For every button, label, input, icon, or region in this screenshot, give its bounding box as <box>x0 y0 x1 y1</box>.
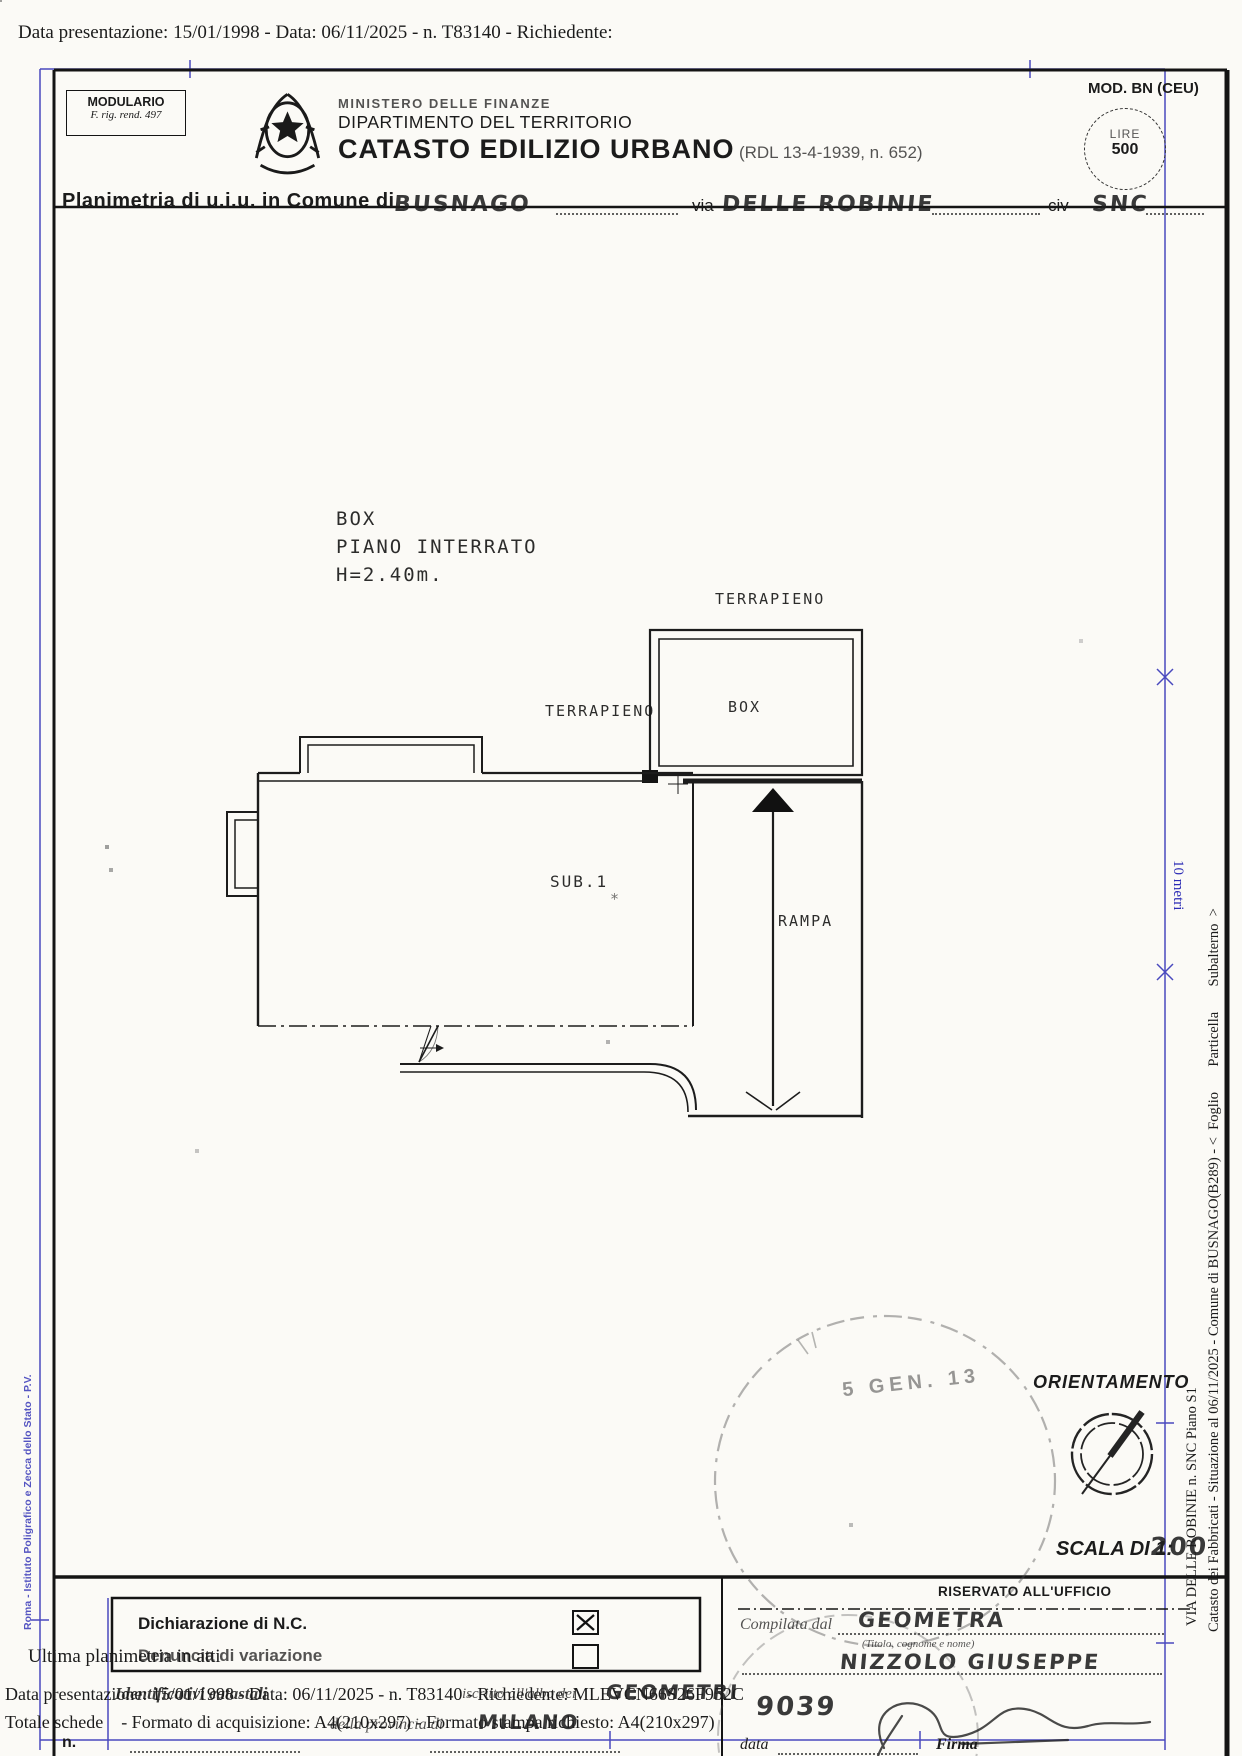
label-box-room: BOX <box>728 698 761 716</box>
label-terrapieno-left: TERRAPIENO <box>545 702 655 720</box>
survey-cross <box>668 774 688 794</box>
republic-emblem-icon <box>245 84 330 184</box>
signature <box>878 1703 1150 1756</box>
provincia-label: della provincia di <box>330 1716 443 1734</box>
plan-caption-line3: H=2.40m. <box>336 564 444 586</box>
compiler-name: NIZZOLO GIUSEPPE <box>839 1650 1101 1674</box>
via-label: via <box>692 196 714 216</box>
label-rampa: RAMPA <box>778 912 833 930</box>
albo-value: GEOMETRI <box>605 1680 740 1704</box>
compass-icon <box>1072 1412 1152 1494</box>
plan-caption-line2: PIANO INTERRATO <box>336 536 538 558</box>
bollo-lire-stamp: LIRE 500 <box>1084 108 1166 190</box>
modulario-box: MODULARIO F. rig. rend. 497 <box>66 90 186 136</box>
mod-bn-label: MOD. BN (CEU) <box>1088 80 1199 97</box>
scalebar-label: 10 metri <box>1169 860 1186 910</box>
via-value: DELLE ROBINIE <box>721 192 935 217</box>
titolo-hint: (Titolo, cognome e nome) <box>862 1638 974 1650</box>
civ-value: SNC <box>1091 192 1150 217</box>
scan-noise <box>0 0 2 2</box>
dotted-line <box>932 212 1040 215</box>
door-swing-icon <box>419 1026 444 1062</box>
department-line: DIPARTIMENTO DEL TERRITORIO <box>338 112 632 133</box>
identificativi-label: Identificativi catastali <box>115 1684 268 1704</box>
document-border <box>54 70 1227 1756</box>
dichiarazione-label: Dichiarazione di N.C. <box>138 1614 307 1634</box>
albo-number: 9039 <box>755 1692 838 1722</box>
ultima-planimetria-overlay: Ultima planimetria in atti <box>28 1646 221 1668</box>
plan-speck-asterisk: * <box>610 890 621 908</box>
margin-text-right-outer: Catasto dei Fabbricati - Situazione al 0… <box>1206 908 1223 1632</box>
margin-text-right-inner: VIA DELLE ROBINIE n. SNC Piano S1 <box>1184 1387 1201 1626</box>
firma-label: Firma <box>936 1736 978 1754</box>
blue-frame <box>31 60 1174 1750</box>
dotted-line <box>1146 212 1204 215</box>
data-label: data <box>740 1736 768 1754</box>
catasto-ref: (RDL 13-4-1939, n. 652) <box>739 143 923 162</box>
label-sub-room: SUB.1 <box>550 872 608 891</box>
riservato-label: RISERVATO ALL'UFFICIO <box>938 1584 1111 1599</box>
compilata-value: GEOMETRA <box>857 1608 1007 1632</box>
dotted-line <box>556 212 678 215</box>
label-terrapieno-top: TERRAPIENO <box>715 590 825 608</box>
checkbox-empty-icon <box>572 1644 599 1669</box>
civ-label: civ <box>1048 196 1069 216</box>
orientamento-label: ORIENTAMENTO <box>1033 1372 1189 1393</box>
dotted-line <box>838 1632 1164 1635</box>
catasto-title: CATASTO EDILIZIO URBANO <box>338 134 735 164</box>
dotted-line <box>130 1750 300 1753</box>
bollo-lire-label: LIRE <box>1085 127 1165 141</box>
provincia-value: MILANO <box>477 1710 580 1734</box>
ministry-line: MINISTERO DELLE FINANZE <box>338 96 551 111</box>
scan-linework <box>0 0 1242 1756</box>
modulario-title: MODULARIO <box>67 95 185 109</box>
iscritto-label: iscritto all'albo dei <box>462 1686 576 1703</box>
planimetria-prefix: Planimetria di u.i.u. in Comune di <box>62 190 395 213</box>
cadastral-floorplan-scan: Data presentazione: 15/01/1998 - Data: 0… <box>0 0 1242 1756</box>
bollo-lire-value: 500 <box>1085 141 1165 159</box>
margin-text-left-printer: Roma - Istituto Poligrafico e Zecca dell… <box>22 1374 34 1630</box>
compilata-label: Compilata dal <box>740 1616 832 1634</box>
scan-meta-header: Data presentazione: 15/01/1998 - Data: 0… <box>18 22 613 44</box>
ramp-arrow <box>746 788 800 1110</box>
plan-caption-line1: BOX <box>336 508 376 530</box>
scala-value: 200 <box>1149 1532 1210 1561</box>
dotted-line <box>778 1752 918 1755</box>
checkbox-checked-icon <box>572 1610 599 1635</box>
modulario-ref: F. rig. rend. 497 <box>67 109 185 121</box>
comune-value: BUSNAGO <box>393 192 532 217</box>
dotted-line <box>742 1672 1162 1675</box>
dotted-line <box>430 1750 620 1753</box>
n-label: n. <box>62 1734 76 1752</box>
